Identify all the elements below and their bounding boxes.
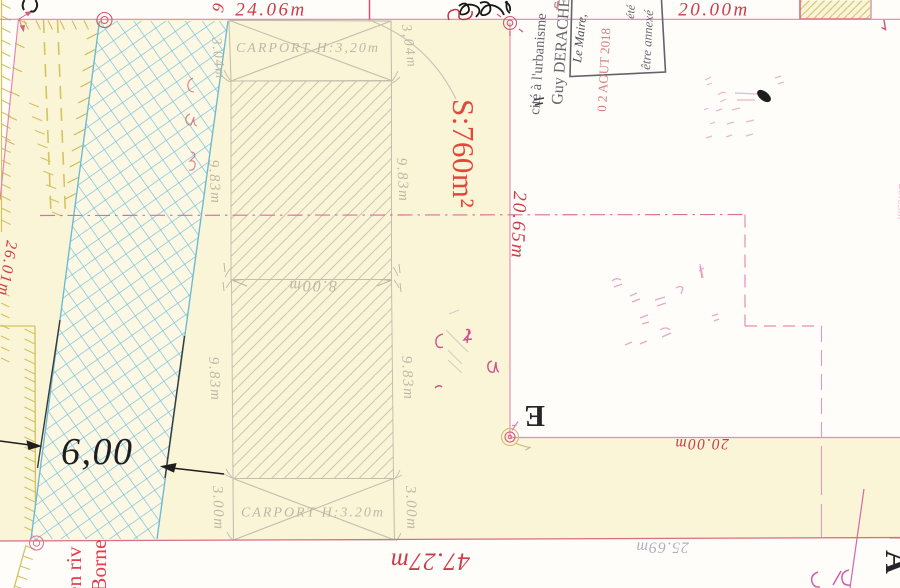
svg-text:E: E bbox=[524, 399, 545, 434]
svg-text:9.83m: 9.83m bbox=[393, 157, 411, 202]
svg-text:47.27m: 47.27m bbox=[390, 548, 470, 575]
svg-text:24.06m: 24.06m bbox=[235, 0, 306, 21]
svg-text:CARPORT H:3,20m: CARPORT H:3,20m bbox=[236, 41, 380, 56]
svg-text:6,00: 6,00 bbox=[61, 431, 134, 473]
svg-text:être annexé: être annexé bbox=[638, 8, 656, 70]
svg-text:A: A bbox=[878, 550, 900, 574]
svg-text:CARPORT H:3.20m: CARPORT H:3.20m bbox=[241, 506, 385, 521]
svg-text:9.83m: 9.83m bbox=[398, 355, 416, 400]
svg-text:25.69m: 25.69m bbox=[635, 539, 689, 556]
svg-text:été: été bbox=[623, 4, 638, 19]
svg-text:8.00m: 8.00m bbox=[287, 277, 337, 294]
svg-text:20.65m: 20.65m bbox=[507, 191, 530, 260]
svg-text:S:760m²: S:760m² bbox=[446, 99, 481, 208]
svg-text:Borne: Borne bbox=[87, 539, 111, 588]
svg-text:20.00m: 20.00m bbox=[678, 0, 749, 21]
svg-text:9.83m: 9.83m bbox=[205, 159, 223, 204]
svg-text:9.83m: 9.83m bbox=[205, 356, 223, 401]
svg-text:en riv: en riv bbox=[62, 546, 86, 588]
svg-text:20.00m: 20.00m bbox=[674, 435, 729, 452]
svg-text:3.00m: 3.00m bbox=[402, 485, 420, 531]
svg-text:3.00m: 3.00m bbox=[209, 485, 227, 531]
